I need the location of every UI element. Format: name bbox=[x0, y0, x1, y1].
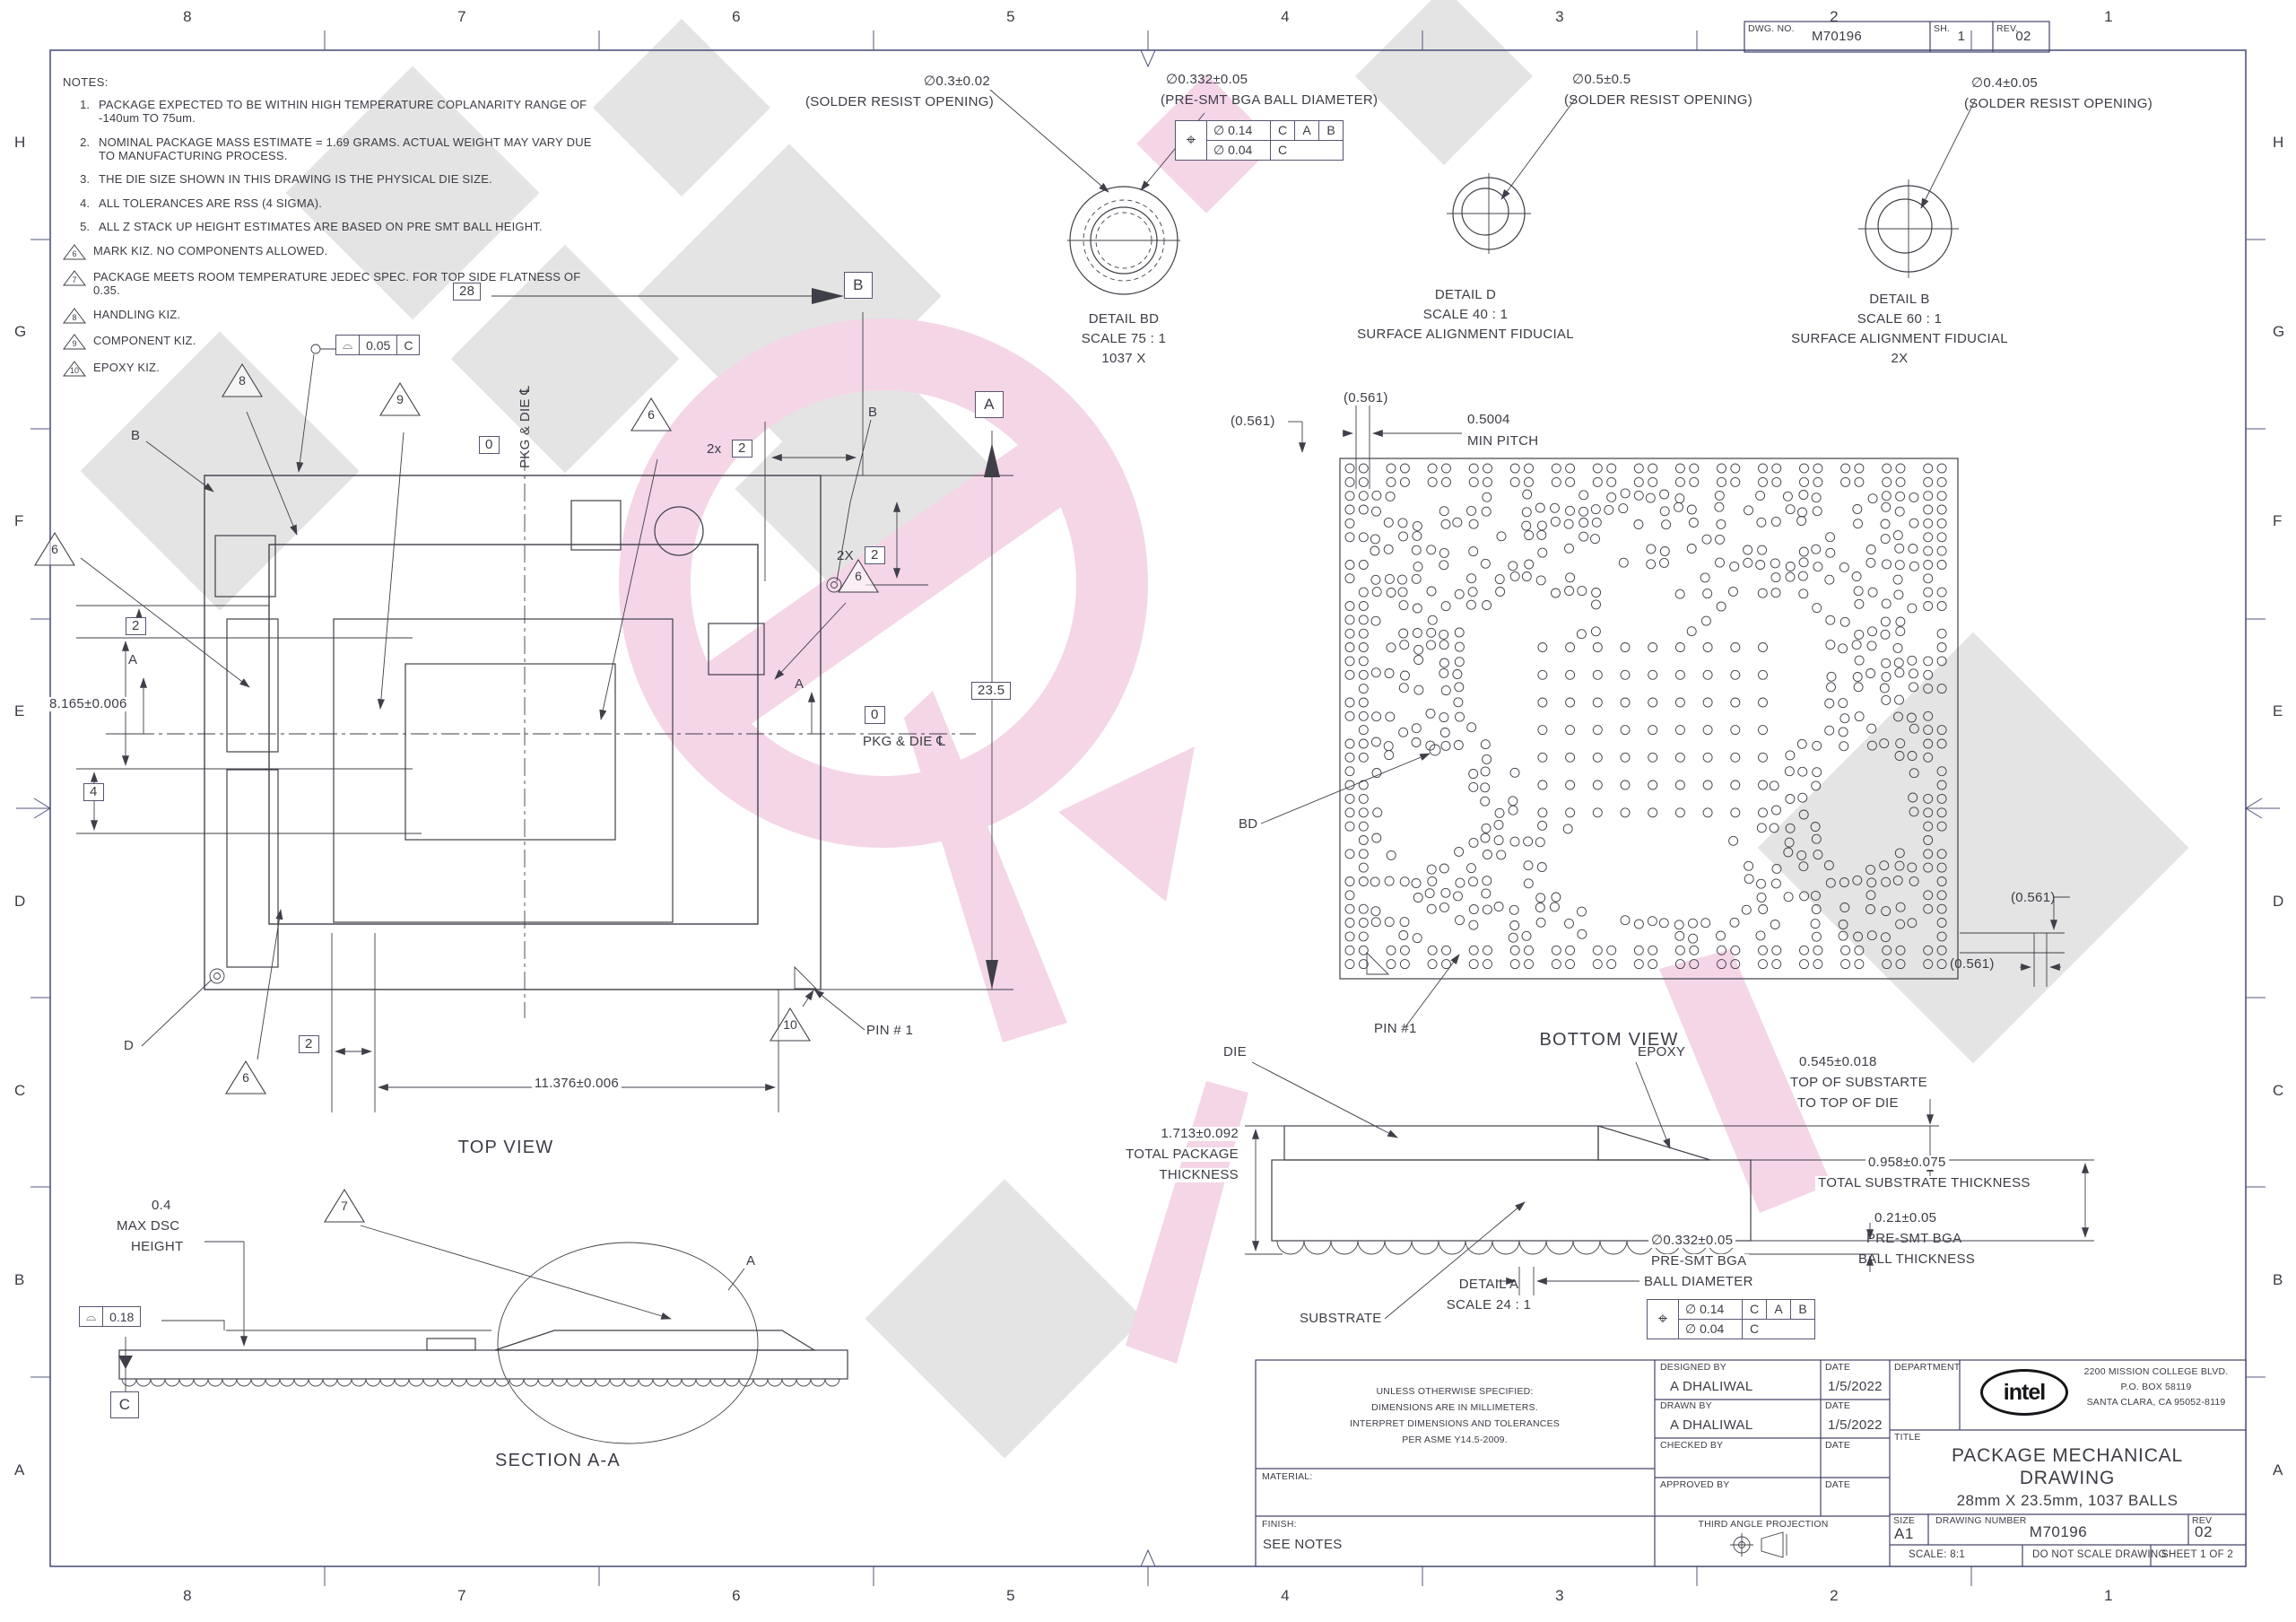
border-col-top-5: 5 bbox=[1006, 9, 1015, 25]
dim-bd-sro-note: (SOLDER RESIST OPENING) bbox=[805, 95, 994, 109]
title-block-rev-value: 02 bbox=[2195, 1524, 2213, 1540]
border-row-right-F: F bbox=[2273, 513, 2283, 529]
title-block-designed-date: 1/5/2022 bbox=[1828, 1380, 1883, 1394]
dim-1713-l2: TOTAL PACKAGE bbox=[1123, 1147, 1241, 1162]
note-item-10: 10EPOXY KIZ. bbox=[63, 361, 601, 377]
flag-number: 10 bbox=[770, 1017, 811, 1032]
title-block-size-value: A1 bbox=[1894, 1526, 1914, 1542]
dim-4-left: 4 bbox=[83, 783, 104, 801]
note-item-3: 3.THE DIE SIZE SHOWN IN THIS DRAWING IS … bbox=[63, 172, 601, 186]
detail-d-note: SURFACE ALIGNMENT FIDUCIAL bbox=[1357, 327, 1574, 342]
border-col-top-6: 6 bbox=[732, 9, 741, 25]
note-flag-6-2: 6 bbox=[34, 531, 75, 571]
border-col-top-1: 1 bbox=[2104, 9, 2113, 25]
detail-d-scale: SCALE 40 : 1 bbox=[1423, 308, 1509, 322]
dim-04: 0.4 bbox=[152, 1199, 171, 1213]
title-block-material-label: MATERIAL: bbox=[1262, 1472, 1312, 1482]
border-col-bottom-3: 3 bbox=[1555, 1588, 1564, 1604]
dim-28: 28 bbox=[453, 283, 481, 301]
detail-bd-title: DETAIL BD bbox=[1089, 312, 1160, 327]
position-symbol-icon: ⌖ bbox=[1176, 121, 1207, 160]
title-block-dn-value: M70196 bbox=[2030, 1524, 2087, 1540]
pkg-die-cl-horiz: PKG & DIE ℄ bbox=[863, 735, 945, 749]
title-block-title1: PACKAGE MECHANICAL bbox=[1952, 1446, 2183, 1466]
section-aa-drawing bbox=[118, 1225, 848, 1443]
border-col-bottom-2: 2 bbox=[1830, 1588, 1839, 1604]
detail-bd-count: 1037 X bbox=[1101, 352, 1145, 366]
detail-b-title: DETAIL B bbox=[1869, 292, 1929, 307]
detail-d-title: DETAIL D bbox=[1435, 288, 1496, 302]
profile-symbol-icon: ⌓ bbox=[80, 1307, 102, 1326]
flag-number: 6 bbox=[838, 569, 879, 583]
note-flag-6-3: 6 bbox=[631, 397, 672, 437]
detail-b-scale: SCALE 60 : 1 bbox=[1857, 312, 1943, 327]
fcf-value: ∅ 0.14 bbox=[1207, 121, 1270, 140]
dim-8165: 8.165±0.006 bbox=[47, 697, 130, 711]
dim-021-l2: PRE-SMT BGA bbox=[1866, 1232, 1961, 1246]
dim-0958-l2: TOTAL SUBSTRATE THICKNESS bbox=[1815, 1176, 2033, 1190]
title-block-tol3: INTERPRET DIMENSIONS AND TOLERANCES bbox=[1350, 1419, 1560, 1429]
label-substrate: SUBSTRATE bbox=[1300, 1312, 1382, 1326]
title-block-department-label: DEPARTMENT bbox=[1894, 1363, 1960, 1373]
drawing-stage: .ln,.thin,.cl,.dsh,.lead,.dim2,.tb,.bord… bbox=[0, 0, 2296, 1622]
title-block-scale-note: SCALE: 8:1 bbox=[1909, 1549, 1965, 1560]
dim-d-sro-note: (SOLDER RESIST OPENING) bbox=[1564, 93, 1752, 108]
note-flag-icon: 8 bbox=[63, 308, 86, 324]
zero-right: 0 bbox=[865, 706, 885, 724]
flag-number: 6 bbox=[225, 1070, 266, 1085]
notes-heading: NOTES: bbox=[63, 75, 601, 89]
border-row-left-D: D bbox=[14, 894, 26, 910]
border-row-left-F: F bbox=[14, 513, 24, 529]
dim-2x2-top-box: 2 bbox=[732, 440, 752, 458]
dim-0332-l2: PRE-SMT BGA bbox=[1648, 1254, 1749, 1269]
dim-2-left: 2 bbox=[126, 617, 146, 635]
fcf-datum: B bbox=[1318, 121, 1343, 140]
border-row-right-D: D bbox=[2273, 894, 2284, 910]
border-col-bottom-6: 6 bbox=[732, 1588, 741, 1604]
border-row-left-A: A bbox=[14, 1462, 25, 1478]
dim-021: 0.21±0.05 bbox=[1874, 1211, 1936, 1225]
title-block-designed-date-label: DATE bbox=[1825, 1363, 1850, 1373]
title-block-finish-label: FINISH: bbox=[1262, 1520, 1297, 1530]
title-block-addr3: SANTA CLARA, CA 95052-8119 bbox=[2087, 1398, 2226, 1408]
title-block-checked-date-label: DATE bbox=[1825, 1441, 1850, 1451]
dim-bd-ball-note: (PRE-SMT BGA BALL DIAMETER) bbox=[1161, 93, 1378, 108]
border-col-top-7: 7 bbox=[457, 9, 466, 25]
detail-a-title: DETAIL A bbox=[1459, 1278, 1519, 1292]
label-b-left: B bbox=[131, 429, 140, 443]
position-symbol-icon: ⌖ bbox=[1648, 1300, 1679, 1339]
border-col-top-2: 2 bbox=[1830, 9, 1839, 25]
note-flag-icon: 9 bbox=[63, 334, 86, 350]
border-row-left-E: E bbox=[14, 703, 25, 719]
note-flag-10-6: 10 bbox=[770, 1007, 811, 1047]
border-col-bottom-1: 1 bbox=[2104, 1588, 2113, 1604]
dim-bd-sro: ∅0.3±0.02 bbox=[924, 74, 990, 89]
title-block-drawn-label: DRAWN BY bbox=[1660, 1401, 1712, 1411]
fcf-flatness-section: ⌓ 0.18 bbox=[79, 1306, 141, 1327]
fcf-datum: A bbox=[1294, 121, 1318, 140]
dim-minpitch-2: MIN PITCH bbox=[1467, 434, 1538, 449]
note-item-8: 8HANDLING KIZ. bbox=[63, 308, 601, 324]
title-block-dn-label: DRAWING NUMBER bbox=[1935, 1516, 2027, 1526]
border-row-right-E: E bbox=[2273, 703, 2283, 719]
border-col-top-8: 8 bbox=[183, 9, 192, 25]
note-flag-8-0: 8 bbox=[222, 362, 263, 403]
border-row-right-C: C bbox=[2273, 1083, 2284, 1099]
title-block-drawn-date-label: DATE bbox=[1825, 1401, 1850, 1411]
title-block-tol2: DIMENSIONS ARE IN MILLIMETERS. bbox=[1371, 1403, 1538, 1413]
flag-number: 7 bbox=[324, 1199, 365, 1213]
note-flag-9-1: 9 bbox=[379, 381, 421, 422]
title-block-designed-label: DESIGNED BY bbox=[1660, 1363, 1726, 1373]
top-view-title: TOP VIEW bbox=[458, 1138, 554, 1157]
title-block-finish-value: SEE NOTES bbox=[1263, 1538, 1343, 1552]
brand-text: intel bbox=[2004, 1380, 2045, 1406]
zero-top: 0 bbox=[479, 436, 500, 454]
datum-a-flag: A bbox=[975, 391, 1004, 418]
pin1-bottom-label: PIN #1 bbox=[1374, 1022, 1417, 1036]
border-row-left-H: H bbox=[14, 135, 26, 151]
fcf-datum: B bbox=[1790, 1300, 1814, 1319]
sheet-strip-sh-value: 1 bbox=[1958, 30, 1966, 44]
border-row-left-B: B bbox=[14, 1272, 25, 1288]
title-block-drawn-date: 1/5/2022 bbox=[1828, 1418, 1883, 1433]
note-item-4: 4.ALL TOLERANCES ARE RSS (4 SIGMA). bbox=[63, 196, 601, 210]
note-flag-icon: 6 bbox=[63, 244, 86, 260]
dim-0958: 0.958±0.075 bbox=[1865, 1155, 1949, 1170]
title-block-addr1: 2200 MISSION COLLEGE BLVD. bbox=[2084, 1367, 2229, 1377]
label-epoxy: EPOXY bbox=[1638, 1045, 1685, 1060]
fcf-position-detail-bd: ⌖ ∅ 0.14 C A B ∅ 0.04 C bbox=[1175, 120, 1344, 161]
border-row-right-G: G bbox=[2273, 324, 2285, 340]
dim-04-l3: HEIGHT bbox=[131, 1240, 183, 1254]
dim-d-sro: ∅0.5±0.5 bbox=[1572, 73, 1631, 87]
title-block-title-label: TITLE bbox=[1894, 1433, 1921, 1443]
package-mechanical-drawing-sheet: { "brand": "intel", "sheet_strip": { "dw… bbox=[0, 0, 2296, 1622]
dim-1713: 1.713±0.092 bbox=[1158, 1127, 1241, 1141]
note-flag-7-7: 7 bbox=[324, 1188, 365, 1228]
dim-0545: 0.545±0.018 bbox=[1799, 1055, 1877, 1069]
pkg-die-cl-vert: PKG & DIE ℄ bbox=[518, 386, 533, 468]
title-block-checked-label: CHECKED BY bbox=[1660, 1441, 1723, 1451]
border-col-bottom-7: 7 bbox=[457, 1588, 466, 1604]
flag-number: 6 bbox=[34, 542, 75, 556]
dim-bd-ball: ∅0.332±0.05 bbox=[1166, 73, 1248, 87]
note-flag-icon: 10 bbox=[63, 361, 86, 377]
dim-b-sro-note: (SOLDER RESIST OPENING) bbox=[1964, 97, 2152, 111]
title-block-subtitle: 28mm X 23.5mm, 1037 BALLS bbox=[1957, 1493, 2179, 1509]
intel-logo: intel bbox=[1980, 1369, 2068, 1416]
dim-0561-br2: (0.561) bbox=[1950, 957, 1995, 972]
dim-2-bottom: 2 bbox=[299, 1035, 319, 1053]
flag-number: 6 bbox=[631, 407, 672, 422]
border-row-right-A: A bbox=[2273, 1462, 2283, 1478]
fcf-value: ∅ 0.14 bbox=[1679, 1300, 1742, 1319]
dim-2x2-top: 2x bbox=[707, 442, 721, 457]
label-die: DIE bbox=[1223, 1045, 1247, 1060]
notes-list: NOTES: 1.PACKAGE EXPECTED TO BE WITHIN H… bbox=[63, 75, 601, 387]
border-col-top-4: 4 bbox=[1281, 9, 1290, 25]
title-block-sheet-note: SHEET 1 OF 2 bbox=[2161, 1549, 2233, 1560]
datum-b-flag: B bbox=[844, 272, 873, 299]
fcf-value: ∅ 0.04 bbox=[1207, 141, 1270, 160]
dim-23-5: 23.5 bbox=[971, 682, 1011, 700]
note-flag-6-4: 6 bbox=[838, 558, 879, 598]
border-col-top-3: 3 bbox=[1555, 9, 1564, 25]
dim-0561-tl1: (0.561) bbox=[1231, 414, 1275, 429]
dim-04-l2: MAX DSC bbox=[117, 1219, 179, 1234]
dim-11376: 11.376±0.006 bbox=[532, 1077, 622, 1091]
detail-b-note: SURFACE ALIGNMENT FIDUCIAL bbox=[1791, 332, 2008, 346]
dim-021-l3: BALL THICKNESS bbox=[1858, 1252, 1975, 1267]
detail-bd-scale: SCALE 75 : 1 bbox=[1082, 332, 1167, 346]
flag-number: 9 bbox=[379, 392, 421, 406]
dim-0332-l3: BALL DIAMETER bbox=[1641, 1275, 1756, 1289]
note-item-5: 5.ALL Z STACK UP HEIGHT ESTIMATES ARE BA… bbox=[63, 220, 601, 233]
dim-0561-br1: (0.561) bbox=[2011, 891, 2056, 905]
dim-minpitch-1: 0.5004 bbox=[1467, 413, 1510, 427]
note-item-6: 6MARK KIZ. NO COMPONENTS ALLOWED. bbox=[63, 244, 601, 260]
fcf-datum: C bbox=[1742, 1300, 1766, 1319]
border-col-bottom-4: 4 bbox=[1281, 1588, 1290, 1604]
border-col-bottom-5: 5 bbox=[1006, 1588, 1015, 1604]
flag-number: 8 bbox=[222, 373, 263, 388]
border-col-bottom-8: 8 bbox=[183, 1588, 192, 1604]
fcf-value: ∅ 0.04 bbox=[1679, 1320, 1742, 1339]
sheet-strip-sh-label: SH. bbox=[1934, 24, 1950, 34]
profile-symbol-icon: ⌓ bbox=[336, 336, 359, 354]
datum-c-flag: C bbox=[110, 1391, 139, 1418]
detail-b-drawing bbox=[1858, 100, 1975, 278]
sheet-strip-dwg-label: DWG. NO. bbox=[1748, 24, 1795, 34]
title-block-approved-date-label: DATE bbox=[1825, 1480, 1850, 1490]
title-block-designed-by: A DHALIWAL bbox=[1670, 1380, 1752, 1394]
fcf-datum: C bbox=[1742, 1320, 1766, 1339]
fcf-datum: C bbox=[1270, 121, 1294, 140]
border-row-right-H: H bbox=[2273, 135, 2284, 151]
border-row-left-C: C bbox=[14, 1083, 26, 1099]
note-item-2: 2.NOMINAL PACKAGE MASS ESTIMATE = 1.69 G… bbox=[63, 135, 601, 162]
note-item-1: 1.PACKAGE EXPECTED TO BE WITHIN HIGH TEM… bbox=[63, 98, 601, 125]
note-flag-icon: 7 bbox=[63, 270, 86, 286]
fcf-datum: A bbox=[1766, 1300, 1790, 1319]
dim-0561-tl2: (0.561) bbox=[1344, 391, 1388, 405]
title-block-addr2: P.O. BOX 58119 bbox=[2121, 1382, 2192, 1392]
section-a-right: A bbox=[795, 677, 804, 692]
title-block-title2: DRAWING bbox=[2020, 1469, 2115, 1488]
title-block-third-angle: THIRD ANGLE PROJECTION bbox=[1698, 1520, 1828, 1530]
dim-1713-l3: THICKNESS bbox=[1156, 1168, 1241, 1182]
fcf-value: 0.05 bbox=[359, 336, 396, 354]
detail-a-scale: SCALE 24 : 1 bbox=[1447, 1298, 1532, 1312]
title-block-tol4: PER ASME Y14.5-2009. bbox=[1402, 1435, 1508, 1445]
sheet-strip-dwg-value: M70196 bbox=[1812, 30, 1862, 44]
label-b-right: B bbox=[868, 405, 877, 420]
label-a-callout: A bbox=[746, 1254, 755, 1269]
title-block-noscale-note: DO NOT SCALE DRAWING bbox=[2032, 1549, 2167, 1560]
dim-0545-l2: TOP OF SUBSTARTE bbox=[1790, 1076, 1927, 1090]
dim-0332: ∅0.332±0.05 bbox=[1648, 1234, 1735, 1248]
fcf-flatness-top-view: ⌓ 0.05 C bbox=[335, 335, 420, 355]
note-flag-6-5: 6 bbox=[225, 1060, 266, 1100]
title-block-drawn-by: A DHALIWAL bbox=[1670, 1418, 1752, 1433]
label-bd-leader: BD bbox=[1239, 817, 1257, 832]
fcf-datum: C bbox=[396, 336, 419, 354]
section-aa-title: SECTION A-A bbox=[495, 1452, 621, 1470]
detail-b-qty: 2X bbox=[1892, 352, 1909, 366]
note-item-7: 7PACKAGE MEETS ROOM TEMPERATURE JEDEC SP… bbox=[63, 270, 601, 297]
fcf-datum: C bbox=[1270, 141, 1294, 160]
label-d-left: D bbox=[124, 1039, 134, 1053]
fcf-value: 0.18 bbox=[102, 1307, 140, 1326]
dim-b-sro: ∅0.4±0.05 bbox=[1971, 76, 2038, 91]
dim-0545-l3: TO TOP OF DIE bbox=[1797, 1096, 1899, 1111]
title-block-approved-label: APPROVED BY bbox=[1660, 1480, 1729, 1490]
pin1-top-label: PIN # 1 bbox=[866, 1024, 913, 1038]
title-block-tol1: UNLESS OTHERWISE SPECIFIED: bbox=[1377, 1387, 1534, 1397]
note-item-9: 9COMPONENT KIZ. bbox=[63, 334, 601, 350]
border-row-left-G: G bbox=[14, 324, 27, 340]
border-row-right-B: B bbox=[2273, 1272, 2283, 1288]
section-a-left: A bbox=[128, 653, 137, 667]
sheet-strip-rev-value: 02 bbox=[2015, 30, 2031, 44]
fcf-position-detail-a: ⌖ ∅ 0.14 C A B ∅ 0.04 C bbox=[1647, 1299, 1815, 1339]
